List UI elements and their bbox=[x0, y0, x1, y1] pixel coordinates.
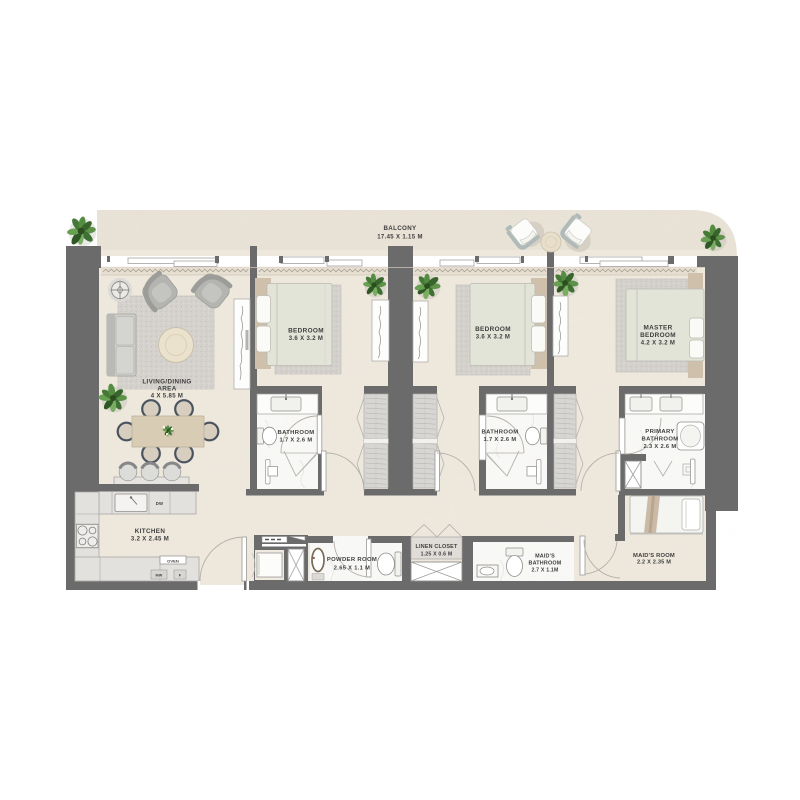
svg-text:OVEN: OVEN bbox=[167, 558, 179, 563]
svg-text:LIVING/DINING: LIVING/DINING bbox=[142, 379, 191, 386]
svg-text:2.2 X 2.35 M: 2.2 X 2.35 M bbox=[637, 560, 671, 566]
svg-text:17.45 X 1.15 M: 17.45 X 1.15 M bbox=[377, 235, 423, 241]
svg-text:1.25 X 0.6 M: 1.25 X 0.6 M bbox=[421, 552, 453, 558]
svg-text:4 X 5.85 M: 4 X 5.85 M bbox=[151, 394, 184, 400]
svg-text:3.6 X 3.2 M: 3.6 X 3.2 M bbox=[476, 335, 511, 341]
svg-text:BATHROOM: BATHROOM bbox=[277, 430, 314, 436]
svg-text:MAID'S: MAID'S bbox=[535, 554, 555, 560]
svg-text:DW: DW bbox=[156, 501, 163, 506]
svg-text:BEDROOM: BEDROOM bbox=[475, 326, 511, 333]
svg-text:BALCONY: BALCONY bbox=[383, 225, 417, 232]
svg-text:BEDROOM: BEDROOM bbox=[288, 328, 324, 335]
svg-text:1.7 X 2.6 M: 1.7 X 2.6 M bbox=[484, 437, 517, 443]
svg-text:PRIMARY: PRIMARY bbox=[645, 429, 674, 435]
svg-text:MASTER: MASTER bbox=[643, 325, 672, 332]
svg-text:1.7 X 2.6 M: 1.7 X 2.6 M bbox=[280, 438, 313, 444]
svg-text:MAID'S ROOM: MAID'S ROOM bbox=[633, 553, 675, 559]
svg-text:BATHROOM: BATHROOM bbox=[481, 430, 518, 436]
svg-text:MW: MW bbox=[156, 574, 163, 578]
svg-text:2.7 X 1.1M: 2.7 X 1.1M bbox=[531, 568, 558, 574]
svg-text:3.2 X 2.45 M: 3.2 X 2.45 M bbox=[131, 537, 169, 543]
svg-text:BEDROOM: BEDROOM bbox=[640, 332, 676, 339]
svg-text:AREA: AREA bbox=[157, 386, 176, 393]
svg-text:KITCHEN: KITCHEN bbox=[135, 528, 166, 535]
svg-text:4.2 X 3.2 M: 4.2 X 3.2 M bbox=[641, 341, 676, 347]
svg-text:3.6 X 3.2 M: 3.6 X 3.2 M bbox=[289, 336, 324, 342]
svg-text:2.65 X 1.1 M: 2.65 X 1.1 M bbox=[334, 565, 370, 571]
svg-text:BATHROOM: BATHROOM bbox=[529, 561, 562, 567]
svg-text:2.3 X 2.6 M: 2.3 X 2.6 M bbox=[644, 444, 677, 450]
svg-text:POWDER ROOM: POWDER ROOM bbox=[327, 557, 377, 563]
svg-text:BATHROOM: BATHROOM bbox=[641, 437, 678, 443]
svg-text:LINEN CLOSET: LINEN CLOSET bbox=[416, 544, 458, 550]
